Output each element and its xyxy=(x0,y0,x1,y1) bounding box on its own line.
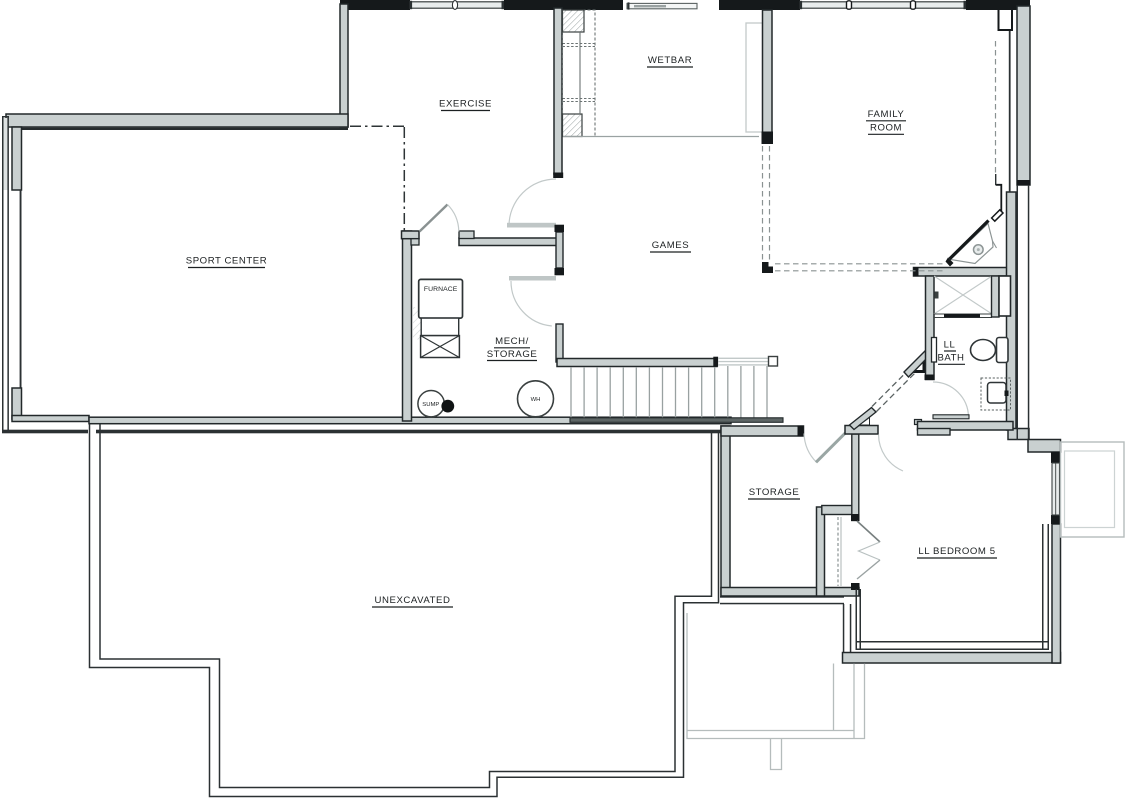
svg-text:GAMES: GAMES xyxy=(652,240,689,251)
svg-text:LL BEDROOM 5: LL BEDROOM 5 xyxy=(918,546,995,557)
svg-text:SPORT CENTER: SPORT CENTER xyxy=(186,256,267,267)
svg-text:STORAGE: STORAGE xyxy=(487,349,538,360)
svg-text:UNEXCAVATED: UNEXCAVATED xyxy=(375,595,451,606)
svg-text:FURNACE: FURNACE xyxy=(424,286,458,293)
svg-text:WH: WH xyxy=(531,397,541,403)
svg-text:STORAGE: STORAGE xyxy=(749,487,800,498)
svg-text:ROOM: ROOM xyxy=(870,123,902,134)
svg-text:BATH: BATH xyxy=(937,353,964,364)
svg-text:WETBAR: WETBAR xyxy=(648,55,692,66)
svg-text:MECH/: MECH/ xyxy=(495,336,529,347)
svg-text:LL: LL xyxy=(944,340,956,351)
svg-text:EXERCISE: EXERCISE xyxy=(439,99,492,110)
svg-text:SUMP: SUMP xyxy=(422,402,439,408)
svg-text:FAMILY: FAMILY xyxy=(868,109,905,120)
